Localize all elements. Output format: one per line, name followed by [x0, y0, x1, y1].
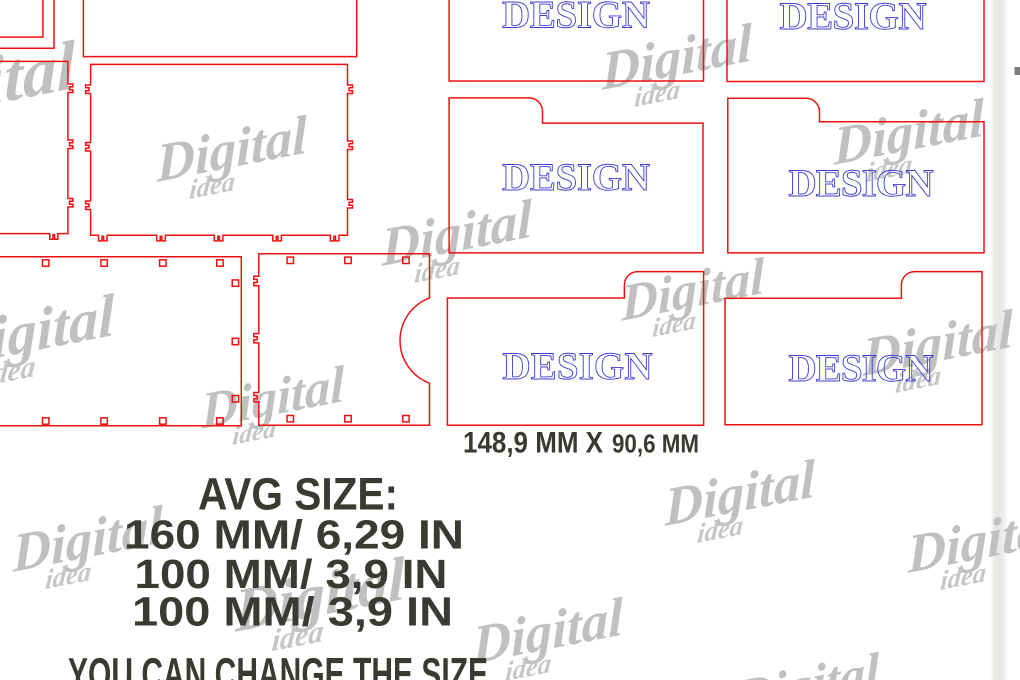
- svg-text:DESIGN: DESIGN: [780, 0, 927, 38]
- svg-text:DESIGN: DESIGN: [502, 156, 650, 199]
- svg-text:DESIGN: DESIGN: [502, 0, 650, 37]
- svg-text:DESIGN: DESIGN: [789, 347, 934, 390]
- svg-text:DESIGN: DESIGN: [789, 162, 934, 205]
- svg-text:100 MM/ 3,9 IN: 100 MM/ 3,9 IN: [132, 588, 453, 634]
- svg-text:DESIGN: DESIGN: [503, 345, 653, 388]
- svg-text:148,9 MM X: 148,9 MM X: [463, 427, 603, 460]
- svg-text:90,6 MM: 90,6 MM: [612, 431, 699, 459]
- svg-text:YOU CAN CHANGE THE SIZE: YOU CAN CHANGE THE SIZE: [68, 648, 488, 680]
